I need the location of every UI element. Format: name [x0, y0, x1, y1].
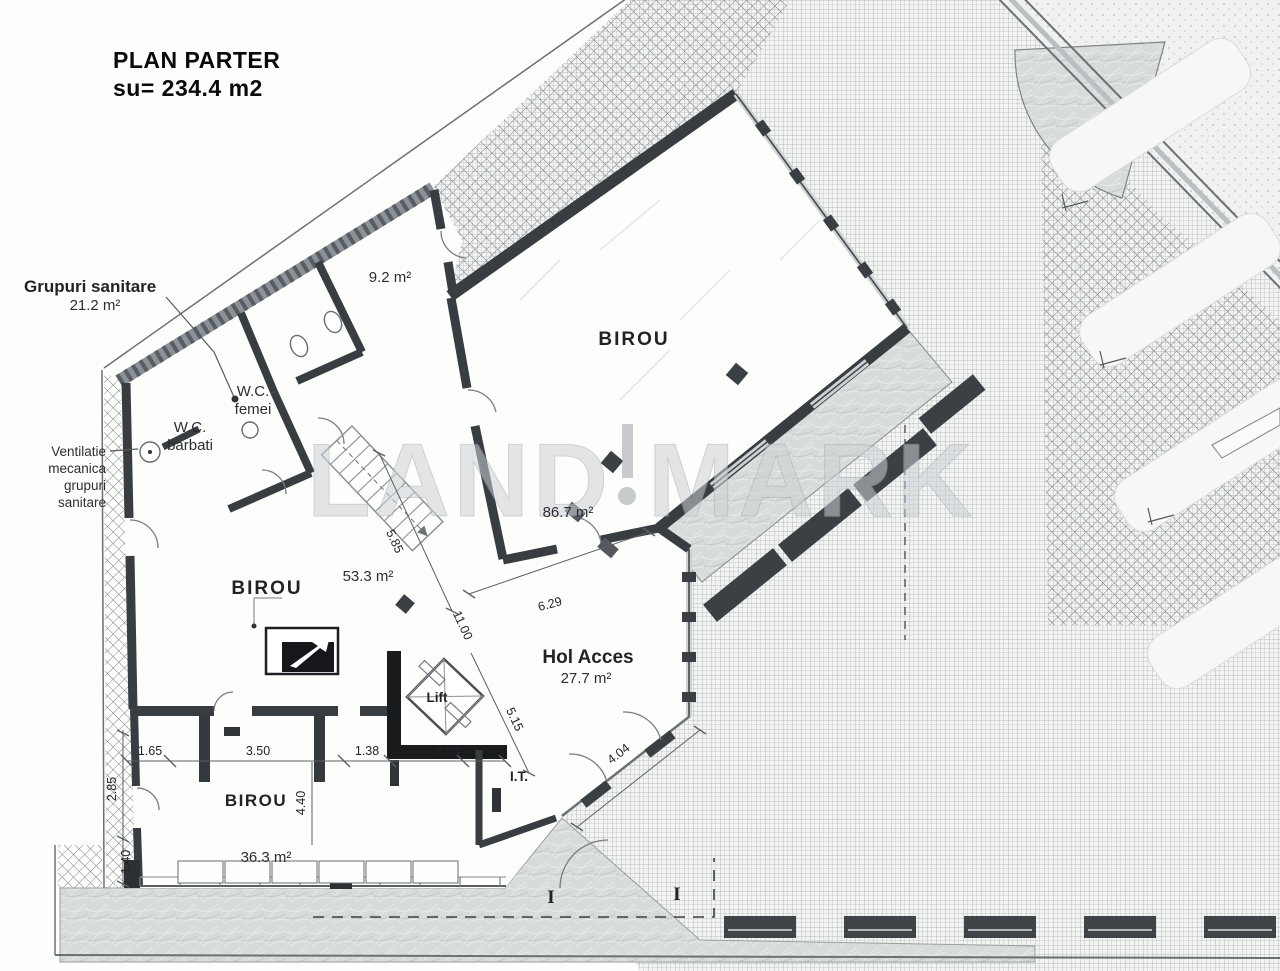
room-9-2-area: 9.2 m² — [369, 269, 412, 286]
birou-mijloc-label: BIROU — [231, 578, 302, 599]
dim-3-04: 3.04 — [436, 744, 460, 758]
hol-acces-label: Hol Acces — [542, 647, 633, 668]
birou-mijloc-area: 53.3 m² — [343, 568, 394, 585]
wc-barbati-line1: W.C. — [174, 419, 207, 436]
ventilatie-line4: sanitare — [58, 495, 106, 510]
birou-mic-label: BIROU — [225, 791, 287, 810]
watermark-dot — [618, 487, 636, 505]
watermark-bar — [622, 424, 633, 478]
dim-1-65: 1.65 — [138, 744, 162, 758]
watermark-right: MARK — [648, 423, 976, 539]
birou-mare-area: 86.7 m² — [543, 504, 594, 521]
wc-femei-line2: femei — [235, 401, 272, 418]
lift-label: Lift — [427, 690, 448, 705]
dim-2-85: 2.85 — [105, 777, 119, 801]
plan-title-line2: su= 234.4 m2 — [113, 75, 263, 101]
watermark-left: LAND — [307, 423, 612, 539]
wc-barbati-line2: barbati — [167, 437, 213, 454]
section-marker-right: I — [673, 884, 680, 905]
birou-mare-label: BIROU — [598, 329, 669, 350]
ventilatie-line1: Ventilatie — [51, 444, 106, 459]
corner-hatch — [58, 845, 102, 890]
section-marker-left: I — [547, 887, 554, 908]
wc-femei-line1: W.C. — [237, 383, 270, 400]
floor-plan: LAND MARK PLAN PARTER su= 23 — [0, 0, 1280, 971]
ventilatie-line3: grupuri — [64, 478, 106, 493]
dim-3-50: 3.50 — [246, 744, 270, 758]
dim-1-40: 1.40 — [119, 850, 133, 874]
floor-plan-sheet: LAND MARK PLAN PARTER su= 23 — [0, 0, 1280, 971]
dim-4-40: 4.40 — [294, 791, 308, 815]
plan-title-line1: PLAN PARTER — [113, 47, 280, 73]
it-label: I.T. — [510, 769, 528, 784]
dim-1-38: 1.38 — [355, 744, 379, 758]
grupuri-sanitare-label: Grupuri sanitare — [24, 277, 156, 296]
grupuri-sanitare-area: 21.2 m² — [70, 297, 121, 314]
birou-mic-area: 36.3 m² — [241, 849, 292, 866]
hol-acces-area: 27.7 m² — [561, 670, 612, 687]
ventilatie-line2: mecanica — [48, 461, 106, 476]
